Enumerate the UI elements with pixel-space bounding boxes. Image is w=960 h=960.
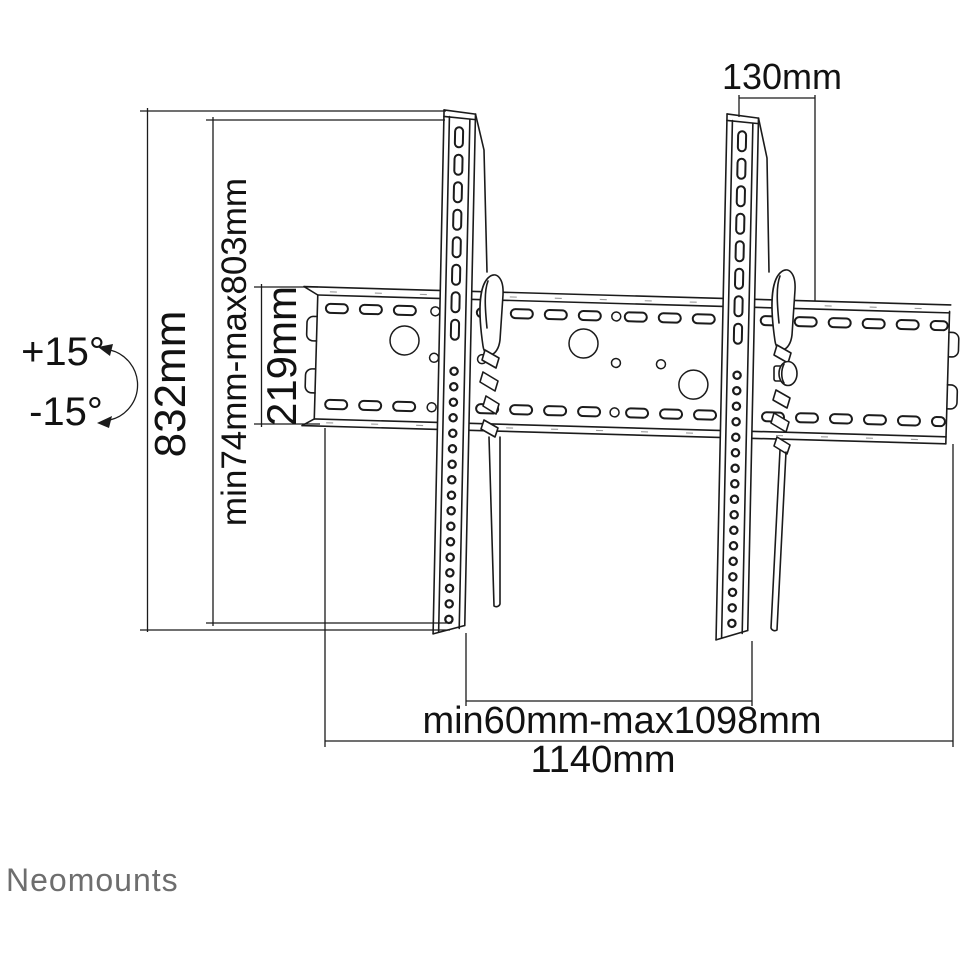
right-tv-bracket: [716, 114, 759, 641]
dim-1098-lines: [466, 633, 752, 706]
screw-hole: [427, 403, 436, 412]
dim-label-height-range: min74mm-max803mm: [215, 178, 254, 526]
screw-hole: [656, 360, 665, 369]
screw-hole: [431, 307, 440, 316]
wall-plate-right-tab-upper: [948, 332, 959, 357]
right-support-arm: [771, 450, 786, 631]
left-tv-bracket: [433, 110, 475, 635]
screw-hole: [610, 408, 619, 417]
right-rail-hook: [772, 270, 795, 350]
screw-hole: [611, 358, 620, 367]
screw-hole: [429, 353, 438, 362]
tilt-up-label: +15°: [21, 330, 105, 374]
cable-hole: [390, 326, 420, 356]
wall-plate: [300, 287, 960, 444]
left-support-arm: [489, 437, 500, 607]
wall-plate-top-flange-left-fold: [304, 287, 318, 295]
right-bracket-side-flange: [759, 118, 770, 272]
dim-label-top-offset: 130mm: [722, 56, 842, 97]
brand-logo: Neomounts: [6, 862, 179, 898]
tilt-arc-curve: [110, 350, 138, 420]
dim-label-total-width: 1140mm: [530, 739, 675, 781]
left-bracket-side-flange: [476, 114, 488, 272]
wall-mount-technical-diagram: 130mm 832mm min74mm-max803mm 219mm +15° …: [0, 0, 960, 960]
dim-label-bracket-height: 832mm: [146, 311, 195, 458]
dim-label-plate-height: 219mm: [258, 286, 305, 426]
wall-plate-right-tab-lower: [947, 385, 958, 409]
cable-hole: [678, 370, 708, 400]
tilt-down-label: -15°: [29, 390, 103, 434]
wall-plate-left-tab-lower: [305, 369, 316, 393]
left-rail-hook: [480, 275, 503, 355]
cable-hole: [569, 329, 599, 359]
wall-plate-left-tab-upper: [306, 316, 317, 341]
screw-hole: [612, 312, 621, 321]
dim-label-width-range: min60mm-max1098mm: [422, 700, 821, 742]
